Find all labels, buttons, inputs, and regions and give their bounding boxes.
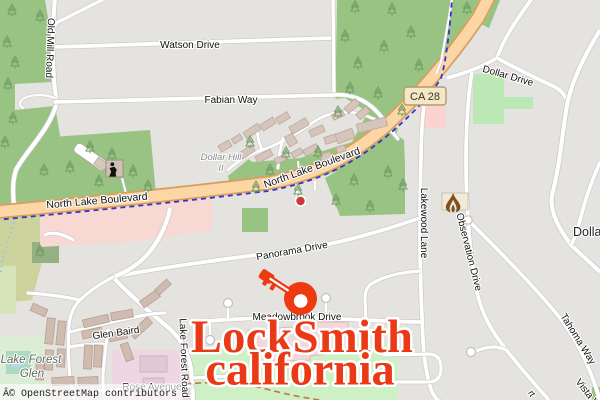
svg-text:Fabian Way: Fabian Way	[205, 95, 258, 106]
svg-text:II: II	[218, 163, 224, 174]
svg-text:Watson Drive: Watson Drive	[160, 40, 220, 51]
svg-text:california: california	[205, 345, 394, 396]
svg-text:Glen: Glen	[20, 368, 44, 380]
svg-text:Â© OpenStreetMap contributors: Â© OpenStreetMap contributors	[3, 386, 177, 400]
svg-text:Lake Forest: Lake Forest	[1, 354, 63, 366]
svg-text:Lakewood Lane: Lakewood Lane	[418, 188, 429, 259]
svg-text:Dollar: Dollar	[573, 225, 600, 239]
svg-text:Dollar Hill: Dollar Hill	[201, 152, 243, 163]
svg-text:Old Mill Road: Old Mill Road	[43, 18, 56, 78]
svg-text:CA 28: CA 28	[410, 91, 440, 103]
